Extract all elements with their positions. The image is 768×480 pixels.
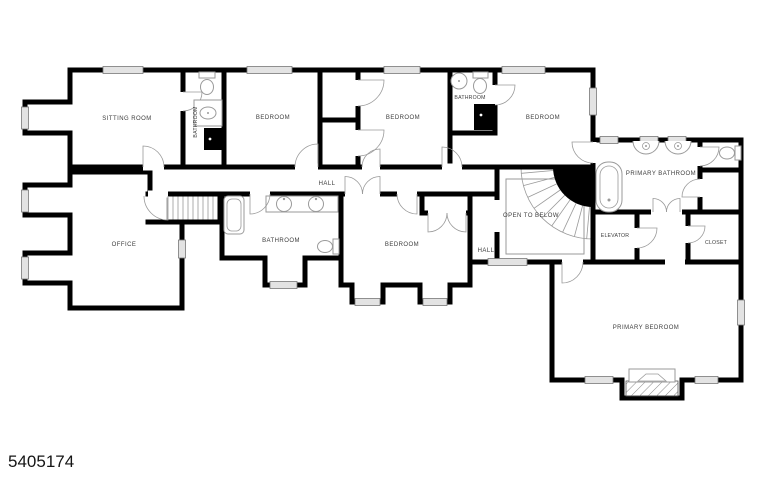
freestanding-tub-icon (596, 162, 622, 212)
label-open-to-below: OPEN TO BELOW (503, 213, 559, 219)
label-primary-bedroom: PRIMARY BEDROOM (613, 325, 680, 331)
label-closet: CLOSET (705, 240, 728, 246)
shower-icon (474, 104, 495, 130)
label-sitting-room: SITTING ROOM (102, 116, 151, 122)
label-bedroom-2: BEDROOM (386, 115, 420, 121)
toilet-icon (199, 72, 215, 95)
straight-staircase-icon (167, 196, 219, 220)
toilet-icon (720, 146, 742, 160)
plan-number: 5405174 (8, 452, 74, 472)
label-hall-upper: HALL (319, 181, 336, 187)
sink-icon (451, 73, 467, 89)
label-bedroom-4: BEDROOM (385, 242, 419, 248)
bathtub-icon (224, 196, 244, 234)
toilet-icon (318, 239, 340, 254)
double-vanity-icon (633, 141, 691, 154)
double-vanity-icon (266, 196, 338, 212)
label-bedroom-1: BEDROOM (256, 115, 290, 121)
label-elevator: ELEVATOR (601, 233, 629, 239)
shower-icon (204, 128, 224, 150)
label-hall-bathroom: BATHROOM (193, 106, 199, 137)
label-bathroom-2: BATHROOM (454, 95, 485, 101)
label-office: OFFICE (112, 242, 137, 248)
label-bedroom-3: BEDROOM (526, 115, 560, 121)
floor-plan: SITTING ROOM BATHROOM BEDROOM BEDROOM BA… (0, 0, 768, 480)
label-bathroom-3: BATHROOM (262, 238, 300, 244)
floor-plan-page: SITTING ROOM BATHROOM BEDROOM BEDROOM BA… (0, 0, 768, 480)
label-hall-lower: HALL (478, 248, 495, 254)
fireplace-icon (626, 369, 678, 396)
door-swing-icons (143, 80, 719, 283)
label-primary-bathroom: PRIMARY BATHROOM (626, 171, 696, 177)
toilet-icon (473, 72, 488, 94)
curved-staircase-icon (521, 167, 593, 239)
